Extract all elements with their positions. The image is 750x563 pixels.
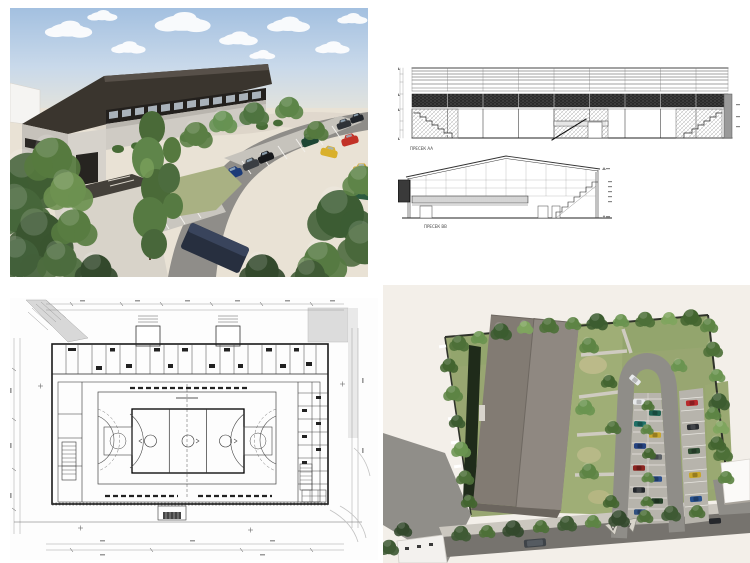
section-bb-drawing: ПРЕСЕК BB (398, 156, 612, 229)
annex-block (398, 180, 410, 202)
figure-aerial-site-render (383, 285, 750, 563)
gallery-band (412, 196, 528, 203)
figure-section-drawings: ПРЕСЕК AA (398, 58, 746, 234)
stair-right (676, 109, 722, 138)
court-label-mark (176, 397, 198, 399)
section-aa-drawing: ПРЕСЕК AA (398, 64, 740, 151)
roof-outline (406, 156, 600, 179)
doors (420, 206, 560, 218)
section-aa-label: ПРЕСЕК AA (410, 146, 433, 151)
section-bb-label: ПРЕСЕК BB (424, 224, 447, 229)
stair-left (412, 109, 458, 138)
elevation-marks-right (736, 104, 740, 127)
roof-layer-lines (412, 68, 728, 91)
stair-center (552, 109, 608, 140)
tribune-steps (556, 182, 598, 218)
figure-ground-floor-plan (10, 298, 378, 560)
facade-panel-band (412, 94, 728, 107)
figure-exterior-perspective-render (10, 8, 368, 277)
west-entrance (479, 405, 485, 421)
roof-grid-verticals (412, 68, 728, 91)
end-wall (724, 94, 732, 138)
elevation-marks-left (398, 64, 403, 140)
architectural-collage: ПРЕСЕК AA (0, 0, 750, 563)
